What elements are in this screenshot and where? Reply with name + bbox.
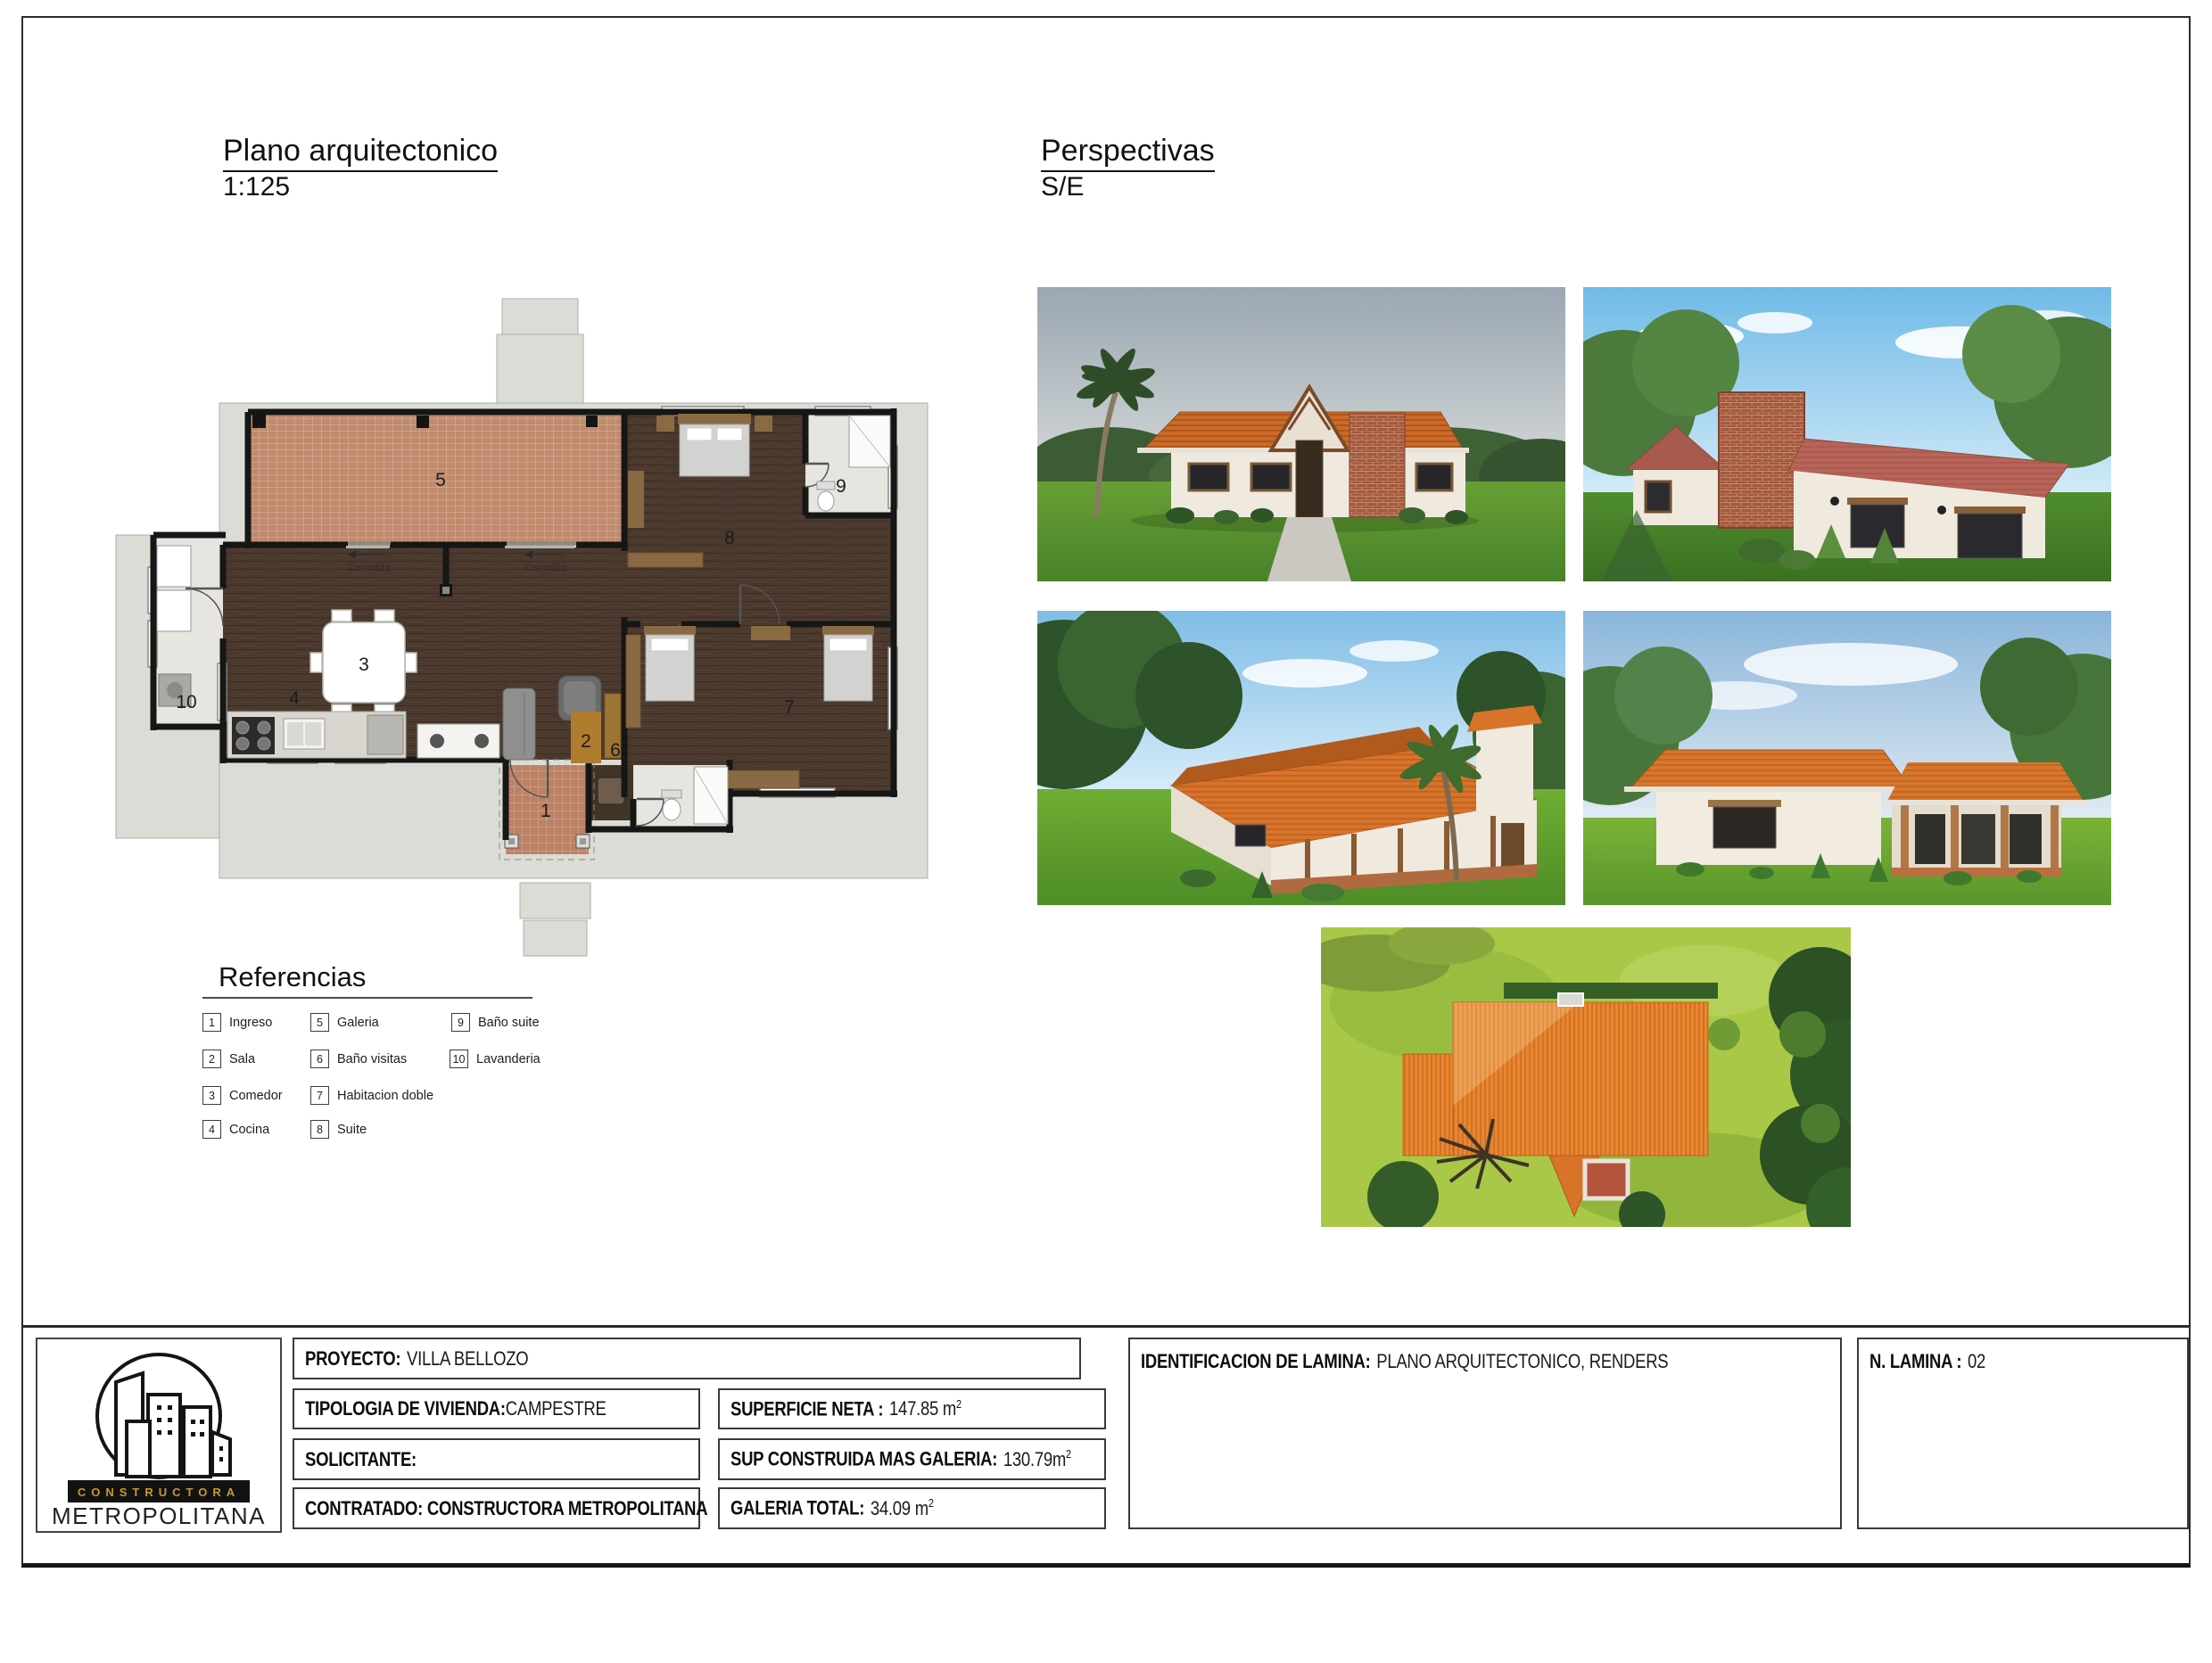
room-10: 10 [176, 692, 196, 712]
plan-scale: 1:125 [223, 172, 290, 202]
field-solicitante: SOLICITANTE: [293, 1438, 700, 1480]
room-2: 2 [581, 731, 591, 752]
field-identificacion: IDENTIFICACION DE LAMINA:PLANO ARQUITECT… [1128, 1338, 1842, 1529]
field-sup-construida: SUP CONSTRUIDA MAS GALERIA:130.79m2 [718, 1438, 1106, 1480]
room-7: 7 [784, 697, 795, 718]
field-superficie-neta: SUPERFICIE NETA :147.85 m2 [718, 1388, 1106, 1429]
reference-item-8: 8Suite [310, 1120, 367, 1139]
room-5: 5 [435, 470, 446, 490]
perspectives-scale: S/E [1041, 172, 1084, 202]
reference-item-7: 7Habitacion doble [310, 1086, 433, 1105]
reference-item-6: 6Baño visitas [310, 1050, 407, 1068]
drawing-sheet: Plano arquitectonico 1:125 Perspectivas … [0, 0, 2212, 1663]
floor-plan: Corrediza Corrediza 1 2 3 4 5 6 7 8 9 10 [71, 294, 937, 972]
references-title: Referencias [219, 961, 366, 993]
render-veranda-view [1037, 611, 1565, 905]
render-aerial-view [1321, 927, 1851, 1227]
field-contratado: CONTRATADO: CONSTRUCTORA METROPOLITANA [293, 1487, 700, 1529]
room-4: 4 [289, 688, 300, 709]
reference-item-2: 2Sala [202, 1050, 255, 1068]
field-proyecto: PROYECTO:VILLA BELLOZO [293, 1338, 1081, 1379]
reference-item-5: 5Galeria [310, 1013, 379, 1032]
reference-item-1: 1Ingreso [202, 1013, 272, 1032]
reference-item-10: 10Lavanderia [450, 1050, 541, 1068]
corrediza-label-1: Corrediza [348, 563, 392, 573]
reference-item-9: 9Baño suite [451, 1013, 540, 1032]
references-underline [202, 997, 532, 999]
room-3: 3 [359, 654, 369, 675]
render-front-view [1037, 287, 1565, 581]
room-9: 9 [836, 476, 846, 497]
room-1: 1 [541, 801, 551, 821]
title-block-divider [21, 1325, 2191, 1328]
render-corner-view [1583, 287, 2111, 581]
logo-line1: CONSTRUCTORA [78, 1486, 240, 1499]
logo-line2: METROPOLITANA [52, 1502, 266, 1529]
room-6: 6 [610, 740, 621, 761]
render-rear-view [1583, 611, 2111, 905]
field-galeria-total: GALERIA TOTAL:34.09 m2 [718, 1487, 1106, 1529]
perspectives-title: Perspectivas [1041, 134, 1215, 172]
reference-item-4: 4Cocina [202, 1120, 269, 1139]
reference-item-3: 3Comedor [202, 1086, 283, 1105]
corrediza-label-2: Corrediza [524, 563, 568, 573]
plan-title: Plano arquitectonico [223, 134, 498, 172]
room-8: 8 [724, 528, 735, 548]
field-numero-lamina: N. LAMINA :02 [1857, 1338, 2189, 1529]
company-logo: CONSTRUCTORA METROPOLITANA [36, 1338, 282, 1533]
field-tipologia: TIPOLOGIA DE VIVIENDA:CAMPESTRE [293, 1388, 700, 1429]
